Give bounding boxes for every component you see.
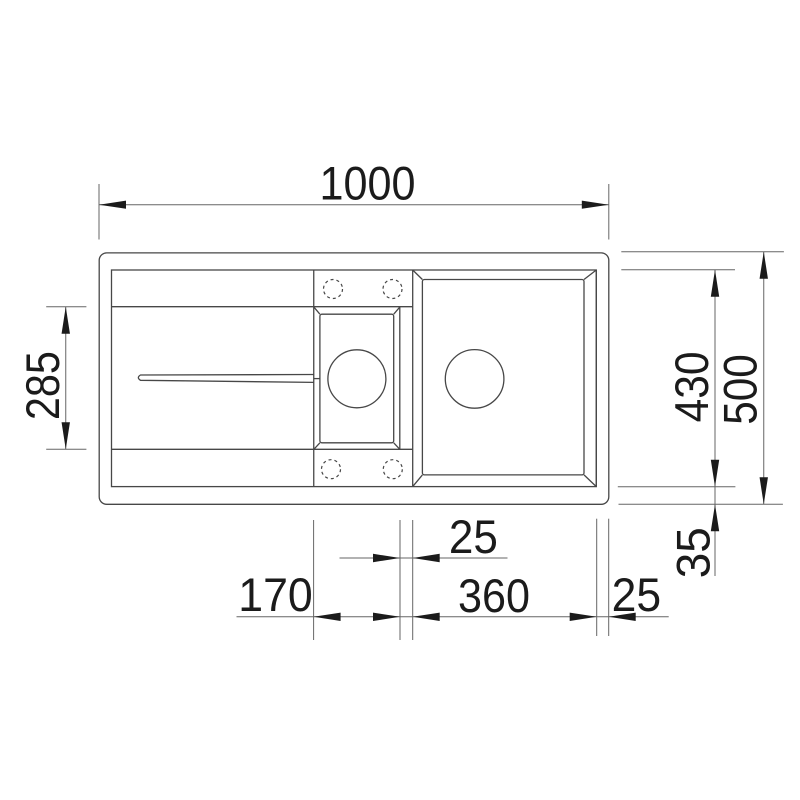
- svg-text:1000: 1000: [320, 156, 416, 209]
- svg-text:170: 170: [238, 568, 313, 621]
- svg-text:285: 285: [16, 351, 69, 420]
- svg-text:500: 500: [713, 354, 766, 425]
- svg-text:35: 35: [667, 527, 720, 578]
- svg-text:430: 430: [665, 351, 718, 422]
- svg-text:25: 25: [612, 568, 662, 621]
- svg-text:360: 360: [458, 569, 530, 622]
- svg-text:25: 25: [449, 510, 498, 563]
